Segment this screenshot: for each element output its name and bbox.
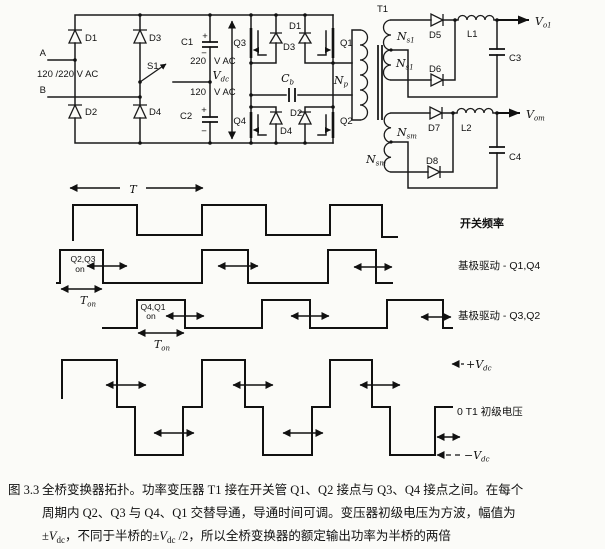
- figure-caption: 图 3.3 全桥变换器拓扑。功率变压器 T1 接在开关管 Q1、Q2 接点与 Q…: [0, 476, 605, 549]
- np-label: Np: [333, 74, 349, 89]
- nsm-top-label: Nsm: [396, 126, 417, 141]
- c4-label: C4: [509, 152, 521, 163]
- ns1-top-label: Ns1: [396, 30, 415, 45]
- q4-label: Q4: [233, 116, 246, 127]
- figure-number: 图 3.3: [8, 479, 39, 502]
- diode-D5: [431, 14, 443, 26]
- minus-vdc-label: −Vdc: [464, 449, 490, 464]
- d7-label: D7: [428, 123, 440, 134]
- l2-label: L2: [461, 123, 472, 134]
- d4-bridge-label: D4: [280, 126, 292, 137]
- cap-C4-plates: [489, 147, 505, 153]
- c3-label: C3: [509, 53, 521, 64]
- circuit-schematic: A B 120 /220 V AC D1 D2 D3 D4 S1 C1 + − …: [37, 4, 552, 188]
- cap-C3-plates: [489, 49, 505, 55]
- c1-volt-num: 220: [190, 56, 206, 67]
- vo1-label: Vo1: [535, 15, 552, 30]
- terminal-b-label: B: [40, 85, 46, 96]
- transformer-primary-coil: [360, 30, 368, 120]
- l1-label: L1: [467, 29, 478, 40]
- c2-minus: −: [201, 126, 207, 137]
- nsm-bottom-label: Nsm: [365, 153, 386, 168]
- row3-ton-label: Ton: [154, 338, 171, 353]
- transformer-core: [378, 45, 382, 120]
- c1-volt-unit: V AC: [214, 56, 236, 67]
- waveform-switching-frequency: [73, 205, 397, 240]
- inductor-L1: [458, 16, 494, 20]
- d6-label: D6: [429, 64, 441, 75]
- row2-pulse-label: Q2,Q3: [70, 254, 95, 264]
- diode-D7: [430, 107, 442, 119]
- caption-line-1: 全桥变换器拓扑。功率变压器 T1 接在开关管 Q1、Q2 接点与 Q3、Q4 接…: [42, 479, 597, 502]
- d8-label: D8: [426, 156, 438, 167]
- d2-input-label: D2: [85, 107, 97, 118]
- q1-label: Q1: [340, 38, 353, 49]
- cap-Cb-plates: [289, 88, 295, 102]
- wires-output2: [391, 113, 497, 188]
- c2-plus: +: [201, 105, 207, 116]
- zero-primary-voltage-label: 0 T1 初级电压: [457, 405, 523, 418]
- row1-label: 开关频率: [460, 216, 504, 230]
- q2-label: Q2: [340, 116, 353, 127]
- d5-label: D5: [429, 30, 441, 41]
- ns1-bottom-label: Ns1: [395, 57, 414, 72]
- q3-label: Q3: [233, 38, 246, 49]
- c1-label: C1: [181, 37, 193, 48]
- d1-input-label: D1: [85, 33, 97, 44]
- c2-volt-unit: V AC: [214, 87, 236, 98]
- d4-input-label: D4: [149, 107, 161, 118]
- row3-pulse-on: on: [146, 311, 156, 321]
- figure-canvas: A B 120 /220 V AC D1 D2 D3 D4 S1 C1 + − …: [0, 0, 605, 474]
- d3-input-label: D3: [149, 33, 161, 44]
- d1-bridge-label: D1: [289, 21, 301, 32]
- diode-D4-bridge: [270, 112, 282, 124]
- waveforms: T 开关频率 Q2,Q3 on Ton 基极驱动 - Q1,Q4 Q4,Q1 o…: [57, 183, 540, 464]
- t1-label: T1: [377, 4, 388, 15]
- terminal-a-label: A: [40, 48, 47, 59]
- waveform-primary-voltage: [62, 360, 452, 455]
- transformer-primary-frame: [352, 30, 360, 120]
- wires-output1: [391, 20, 497, 97]
- row2-ton-label: Ton: [80, 294, 97, 309]
- diode-D3-input: [133, 30, 147, 43]
- c2-volt-num: 120: [190, 87, 206, 98]
- c1-plus: +: [202, 31, 208, 42]
- inductor-L2: [457, 109, 493, 114]
- diode-D4-input: [133, 105, 147, 118]
- vom-label: Vom: [526, 108, 545, 123]
- plus-vdc-label: +Vdc: [466, 358, 492, 373]
- diode-D8: [428, 166, 440, 178]
- mains-voltage-label: 120 /220 V AC: [37, 69, 98, 80]
- row2-label: 基极驱动 - Q1,Q4: [458, 259, 540, 272]
- figure-3-3: A B 120 /220 V AC D1 D2 D3 D4 S1 C1 + − …: [0, 0, 605, 549]
- cap-C1-plates: [202, 42, 218, 47]
- row2-pulse-on: on: [75, 264, 85, 274]
- cb-label: Cb: [281, 72, 294, 87]
- cap-C2-plates: [202, 117, 218, 122]
- diode-D2-input: [68, 105, 82, 118]
- c2-label: C2: [180, 111, 192, 122]
- diode-D6: [431, 74, 443, 86]
- diode-D1-input: [68, 30, 82, 43]
- d2-bridge-label: D2: [290, 108, 302, 119]
- diode-D1-bridge: [299, 33, 311, 43]
- period-label: T: [129, 183, 138, 196]
- s1-label: S1: [147, 61, 159, 72]
- diode-D3-bridge: [270, 33, 282, 43]
- caption-line-2: 周期内 Q2、Q3 与 Q4、Q1 交替导通，导通时间可调。变压器初级电压为方波…: [42, 502, 597, 525]
- vdc-label: Vdc: [213, 69, 229, 84]
- d3-bridge-label: D3: [283, 42, 295, 53]
- row3-label: 基极驱动 - Q3,Q2: [458, 309, 540, 322]
- caption-line-3: ±Vdc，不同于半桥的±Vdc /2，所以全桥变换器的额定输出功率为半桥的两倍: [42, 525, 597, 549]
